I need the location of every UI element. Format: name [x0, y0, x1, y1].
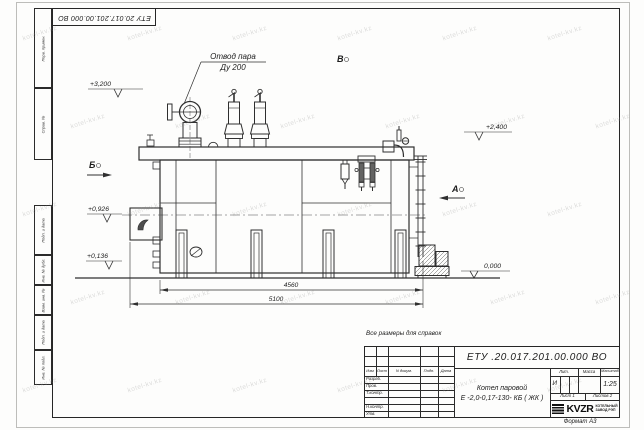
watermark-text: kotel-kv.kz	[22, 201, 58, 219]
watermark-text: kotel-kv.kz	[337, 201, 373, 219]
watermark-text: kotel-kv.kz	[22, 377, 58, 395]
watermark-text: kotel-kv.kz	[547, 201, 583, 219]
watermark-text: kotel-kv.kz	[127, 25, 163, 43]
watermark-text: kotel-kv.kz	[442, 377, 478, 395]
watermark-text: kotel-kv.kz	[232, 25, 268, 43]
watermark-text: kotel-kv.kz	[70, 113, 106, 131]
watermark-text: kotel-kv.kz	[490, 113, 526, 131]
drawing-sheet: 4560 5100 +3,200 +2,400 +0,926 +0,136 0,…	[0, 0, 644, 430]
watermark-text: kotel-kv.kz	[337, 25, 373, 43]
watermark-text: kotel-kv.kz	[595, 113, 631, 131]
watermark-text: kotel-kv.kz	[337, 377, 373, 395]
watermark-text: kotel-kv.kz	[232, 201, 268, 219]
watermark-text: kotel-kv.kz	[70, 289, 106, 307]
watermark-text: kotel-kv.kz	[232, 377, 268, 395]
watermark-text: kotel-kv.kz	[385, 289, 421, 307]
watermark-text: kotel-kv.kz	[490, 289, 526, 307]
watermark-text: kotel-kv.kz	[22, 25, 58, 43]
watermark-text: kotel-kv.kz	[280, 289, 316, 307]
watermark-text: kotel-kv.kz	[547, 25, 583, 43]
watermark-text: kotel-kv.kz	[385, 113, 421, 131]
watermark-layer: kotel-kv.kzkotel-kv.kzkotel-kv.kzkotel-k…	[0, 0, 644, 430]
watermark-text: kotel-kv.kz	[442, 201, 478, 219]
watermark-text: kotel-kv.kz	[175, 289, 211, 307]
watermark-text: kotel-kv.kz	[595, 289, 631, 307]
watermark-text: kotel-kv.kz	[442, 25, 478, 43]
watermark-text: kotel-kv.kz	[280, 113, 316, 131]
watermark-text: kotel-kv.kz	[175, 113, 211, 131]
watermark-text: kotel-kv.kz	[127, 201, 163, 219]
watermark-text: kotel-kv.kz	[547, 377, 583, 395]
watermark-text: kotel-kv.kz	[127, 377, 163, 395]
